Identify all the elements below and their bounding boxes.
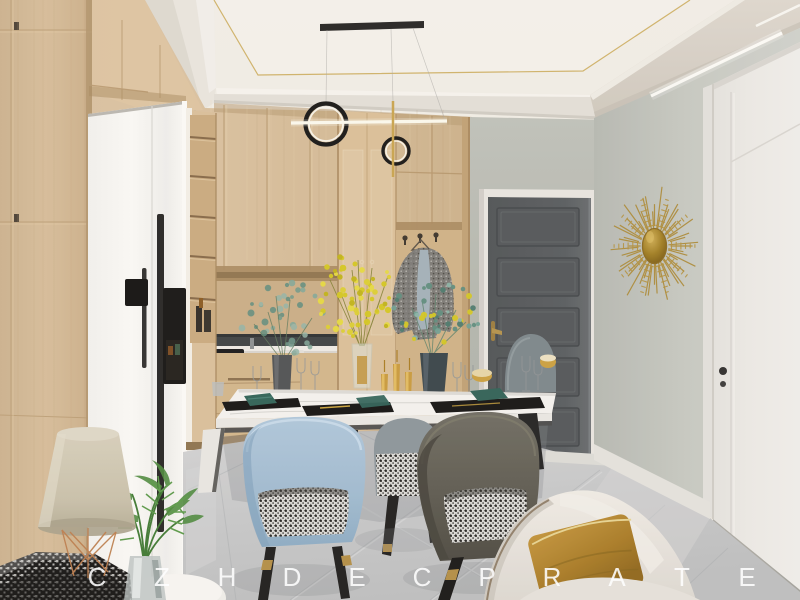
svg-text:Z: Z [154,562,170,592]
svg-text:T: T [674,562,690,592]
svg-text:H: H [218,562,237,592]
svg-text:C: C [413,562,432,592]
svg-text:R: R [543,562,562,592]
svg-text:A: A [608,562,626,592]
svg-text:C: C [88,562,107,592]
svg-text:D: D [283,562,302,592]
svg-text:P: P [478,562,495,592]
svg-text:E: E [348,562,365,592]
svg-text:E: E [738,562,755,592]
